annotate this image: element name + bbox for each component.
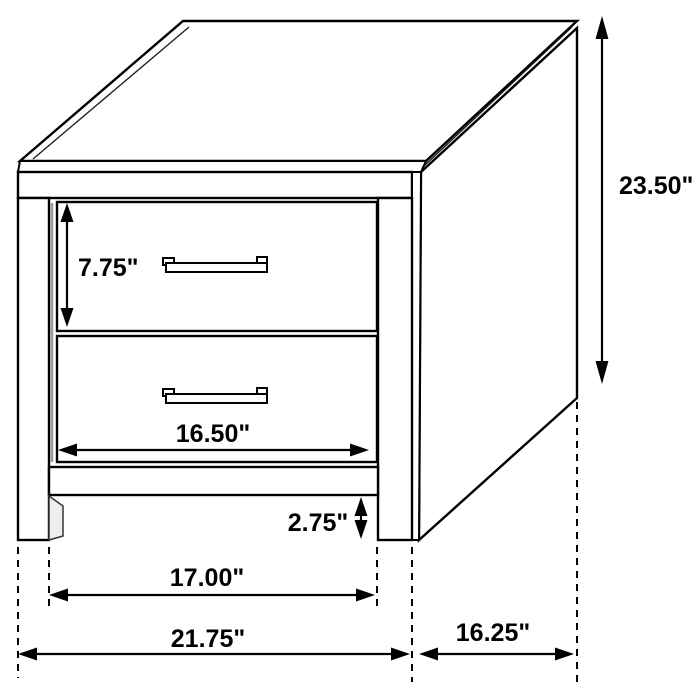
furniture-dimension-diagram: 7.75" 23.50" 16.50" 2.75" 17 [0,0,700,700]
leg-span-width-dimension: 17.00" [49,564,375,602]
arrowhead-left [49,589,68,602]
handle-bar [166,394,267,403]
arrowhead-right [391,648,410,661]
tabletop-front-edge [18,161,426,172]
overall-width-label: 21.75" [171,625,245,653]
base-clearance-dimension: 2.75" [288,497,368,539]
nightstand-diagram-svg: 7.75" 23.50" 16.50" 2.75" 17 [0,0,700,700]
arrowhead-down [596,361,609,384]
depth-label: 16.25" [456,619,530,647]
right-leg [378,198,412,540]
top-rail [18,172,412,198]
arrowhead-up [355,497,368,516]
bottom-rail [49,467,378,495]
arrowhead-down [355,520,368,539]
overall-height-dimension: 23.50" [596,16,694,384]
leg-span-width-label: 17.00" [170,564,244,592]
left-leg-inner-foot [49,496,63,540]
depth-dimension: 16.25" [419,619,574,661]
arrowhead-left [18,648,37,661]
arrowhead-up [596,16,609,39]
handle-bar [166,263,267,272]
arrowhead-right [356,589,375,602]
left-leg [18,198,49,540]
arrowhead-right [555,648,574,661]
overall-width-dimension: 21.75" [18,625,410,661]
base-clearance-label: 2.75" [288,509,349,537]
overall-height-label: 23.50" [619,172,693,200]
drawer-height-label: 7.75" [78,254,139,282]
drawer-width-label: 16.50" [176,420,250,448]
front-right-corner-edge [412,172,421,540]
arrowhead-left [419,648,438,661]
